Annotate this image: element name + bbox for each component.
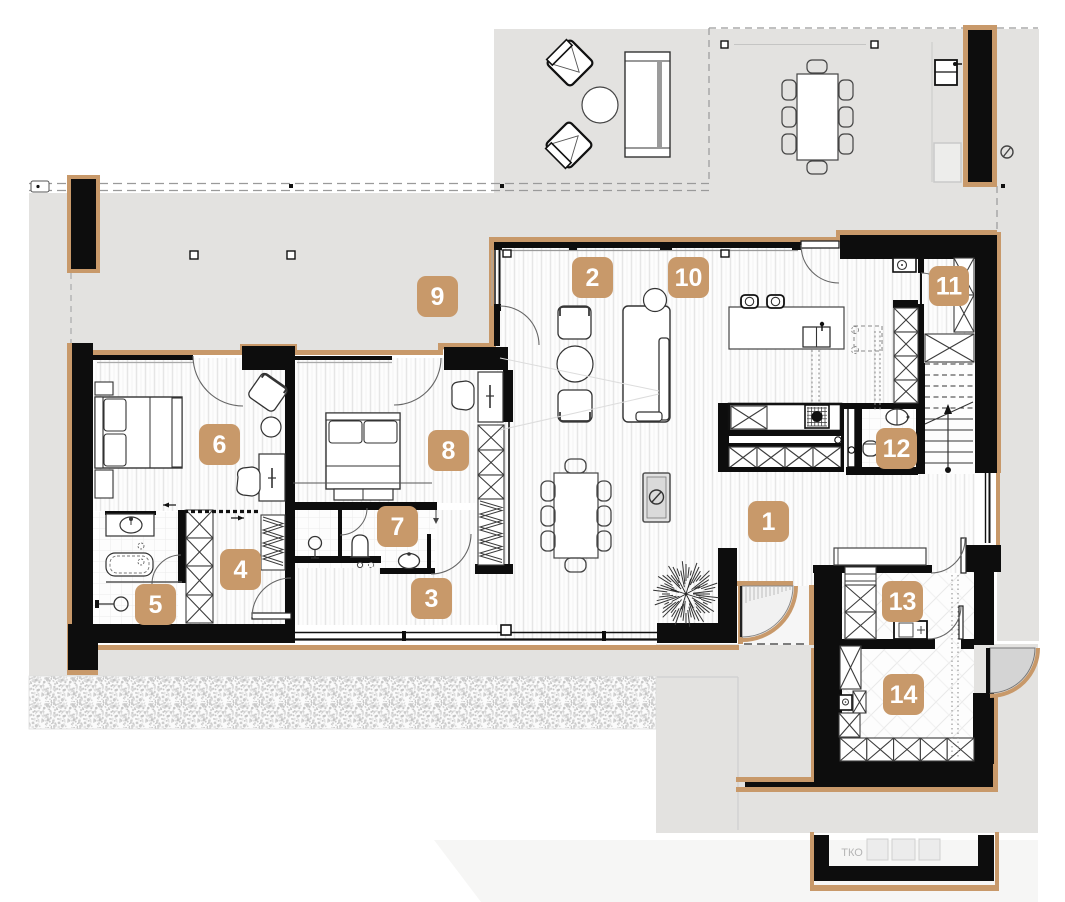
svg-text:11: 11 (936, 273, 963, 301)
svg-text:9: 9 (431, 283, 445, 311)
svg-text:4: 4 (234, 556, 248, 584)
svg-text:13: 13 (889, 588, 917, 616)
svg-text:5: 5 (149, 591, 163, 619)
svg-text:10: 10 (675, 264, 703, 292)
svg-text:6: 6 (213, 431, 227, 459)
svg-text:14: 14 (890, 681, 918, 709)
svg-text:1: 1 (762, 508, 776, 536)
svg-text:12: 12 (883, 435, 911, 463)
svg-text:7: 7 (391, 513, 405, 541)
svg-text:ТКО: ТКО (841, 847, 863, 859)
svg-text:8: 8 (442, 437, 456, 465)
svg-text:3: 3 (425, 585, 439, 613)
svg-text:2: 2 (586, 264, 600, 292)
